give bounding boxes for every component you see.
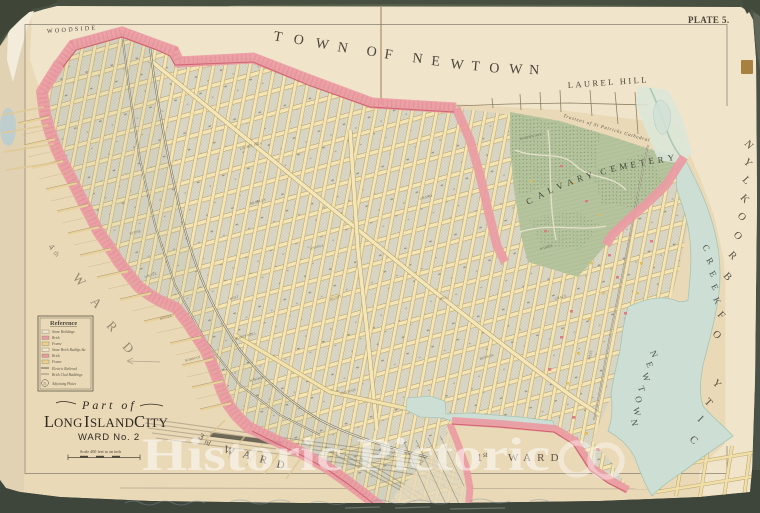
svg-text:SLAND: SLAND [90,416,134,430]
svg-text:ONG: ONG [54,416,83,430]
svg-text:Brick Clad Buildings: Brick Clad Buildings [52,373,83,377]
svg-text:T: T [471,59,481,75]
svg-text:Brick: Brick [52,354,60,358]
svg-text:I: I [84,412,90,431]
svg-text:Part of: Part of [81,398,137,412]
svg-text:L: L [44,412,54,431]
svg-text:M: M [618,160,629,172]
svg-text:Historic Pictoric: Historic Pictoric [142,429,550,481]
svg-text:N: N [412,51,424,67]
svg-text:E: E [431,54,441,70]
svg-text:W: W [450,57,465,73]
svg-text:O: O [489,61,500,77]
svg-text:Electric Railroad: Electric Railroad [51,367,77,371]
svg-text:WARD No. 2: WARD No. 2 [78,432,140,443]
svg-text:Stone Brick Buildgs &c: Stone Brick Buildgs &c [52,348,86,352]
svg-text:R: R [657,154,665,165]
svg-text:Adjoining Plates: Adjoining Plates [51,382,77,386]
svg-text:Stone Buildings: Stone Buildings [52,330,75,334]
svg-text:W: W [509,62,524,78]
svg-text:Frame: Frame [51,342,62,346]
svg-text:N: N [529,63,540,78]
svg-text:Scale 400 feet to an inch: Scale 400 feet to an inch [80,449,122,454]
svg-text:PLATE 5.: PLATE 5. [688,15,730,25]
svg-text:Reference: Reference [50,320,77,327]
svg-text:ITY: ITY [146,416,168,430]
svg-text:Y: Y [667,152,675,163]
svg-text:Brick: Brick [52,336,60,340]
svg-text:Frame: Frame [51,360,62,364]
